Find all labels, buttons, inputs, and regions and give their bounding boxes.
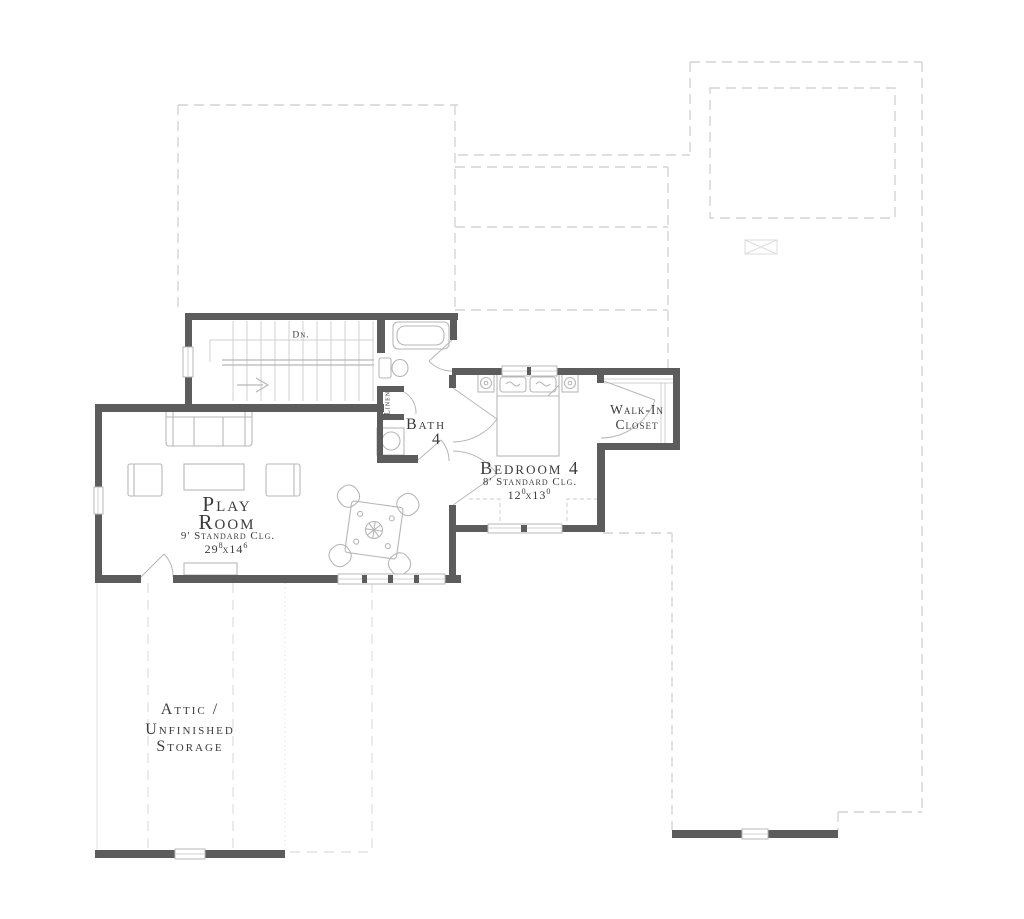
playroom-attic-door <box>141 554 173 577</box>
floor-plan: Dn. Linen Bath 4 Bedroom 4 8' Standard C… <box>0 0 1024 919</box>
sofa <box>166 410 252 446</box>
bedroom-north-window <box>502 366 557 376</box>
playroom-dimensions: 298x146 <box>205 542 248 556</box>
stairs-down-arrow <box>237 378 268 392</box>
coffee-table <box>184 464 244 490</box>
armchair-right <box>266 464 300 496</box>
attic-dashed-lines <box>97 583 372 852</box>
toilet <box>379 358 408 378</box>
roof-outline-dashed <box>178 62 922 830</box>
bathtub <box>393 322 449 349</box>
stairs-window <box>183 347 193 377</box>
attic-window <box>175 849 205 859</box>
playroom-dim-b: 14 <box>229 542 243 556</box>
attic-title-line3: Storage <box>156 738 223 756</box>
attic-title-line1: Attic / <box>161 701 219 719</box>
playroom-dim-b-sup: 6 <box>243 541 247 550</box>
stairs-down-label: Dn. <box>292 331 309 342</box>
playroom-dim-a: 29 <box>205 542 219 556</box>
closet-title: Walk-In Closet <box>610 402 664 432</box>
nightstand-right <box>562 374 578 392</box>
window-bench <box>184 563 237 575</box>
nightstand-left <box>478 374 494 392</box>
closet-title-line2: Closet <box>610 417 664 432</box>
attic-title-line2: Unfinished <box>145 721 235 739</box>
playroom-dim-sep: x <box>223 542 230 556</box>
bath-number-label: 4 <box>432 431 442 449</box>
bedroom-dim-a: 12 <box>508 488 522 502</box>
playroom-ceiling-label: 9' Standard Clg. <box>181 530 275 542</box>
playroom-west-window <box>94 487 103 514</box>
bedroom-dim-b-sup: 0 <box>546 487 550 496</box>
bedroom-dim-sep: x <box>526 488 533 502</box>
linen-closet-door <box>404 392 416 414</box>
bedroom-dashed-brackets <box>469 499 598 524</box>
bedroom-ceiling-label: 8' Standard Clg. <box>483 476 577 488</box>
bedroom-dimensions: 120x130 <box>508 488 551 502</box>
roof-vent-box <box>745 240 777 254</box>
lower-right-window <box>742 829 768 839</box>
bedroom-south-window <box>488 524 562 533</box>
bedroom-dim-b: 13 <box>532 488 546 502</box>
linen-label: Linen <box>384 391 393 415</box>
closet-title-line1: Walk-In <box>610 402 664 417</box>
bed <box>497 374 559 456</box>
armchair-left <box>128 464 162 496</box>
game-table <box>323 479 424 580</box>
walls <box>95 313 838 858</box>
playroom-south-windows <box>338 574 445 584</box>
